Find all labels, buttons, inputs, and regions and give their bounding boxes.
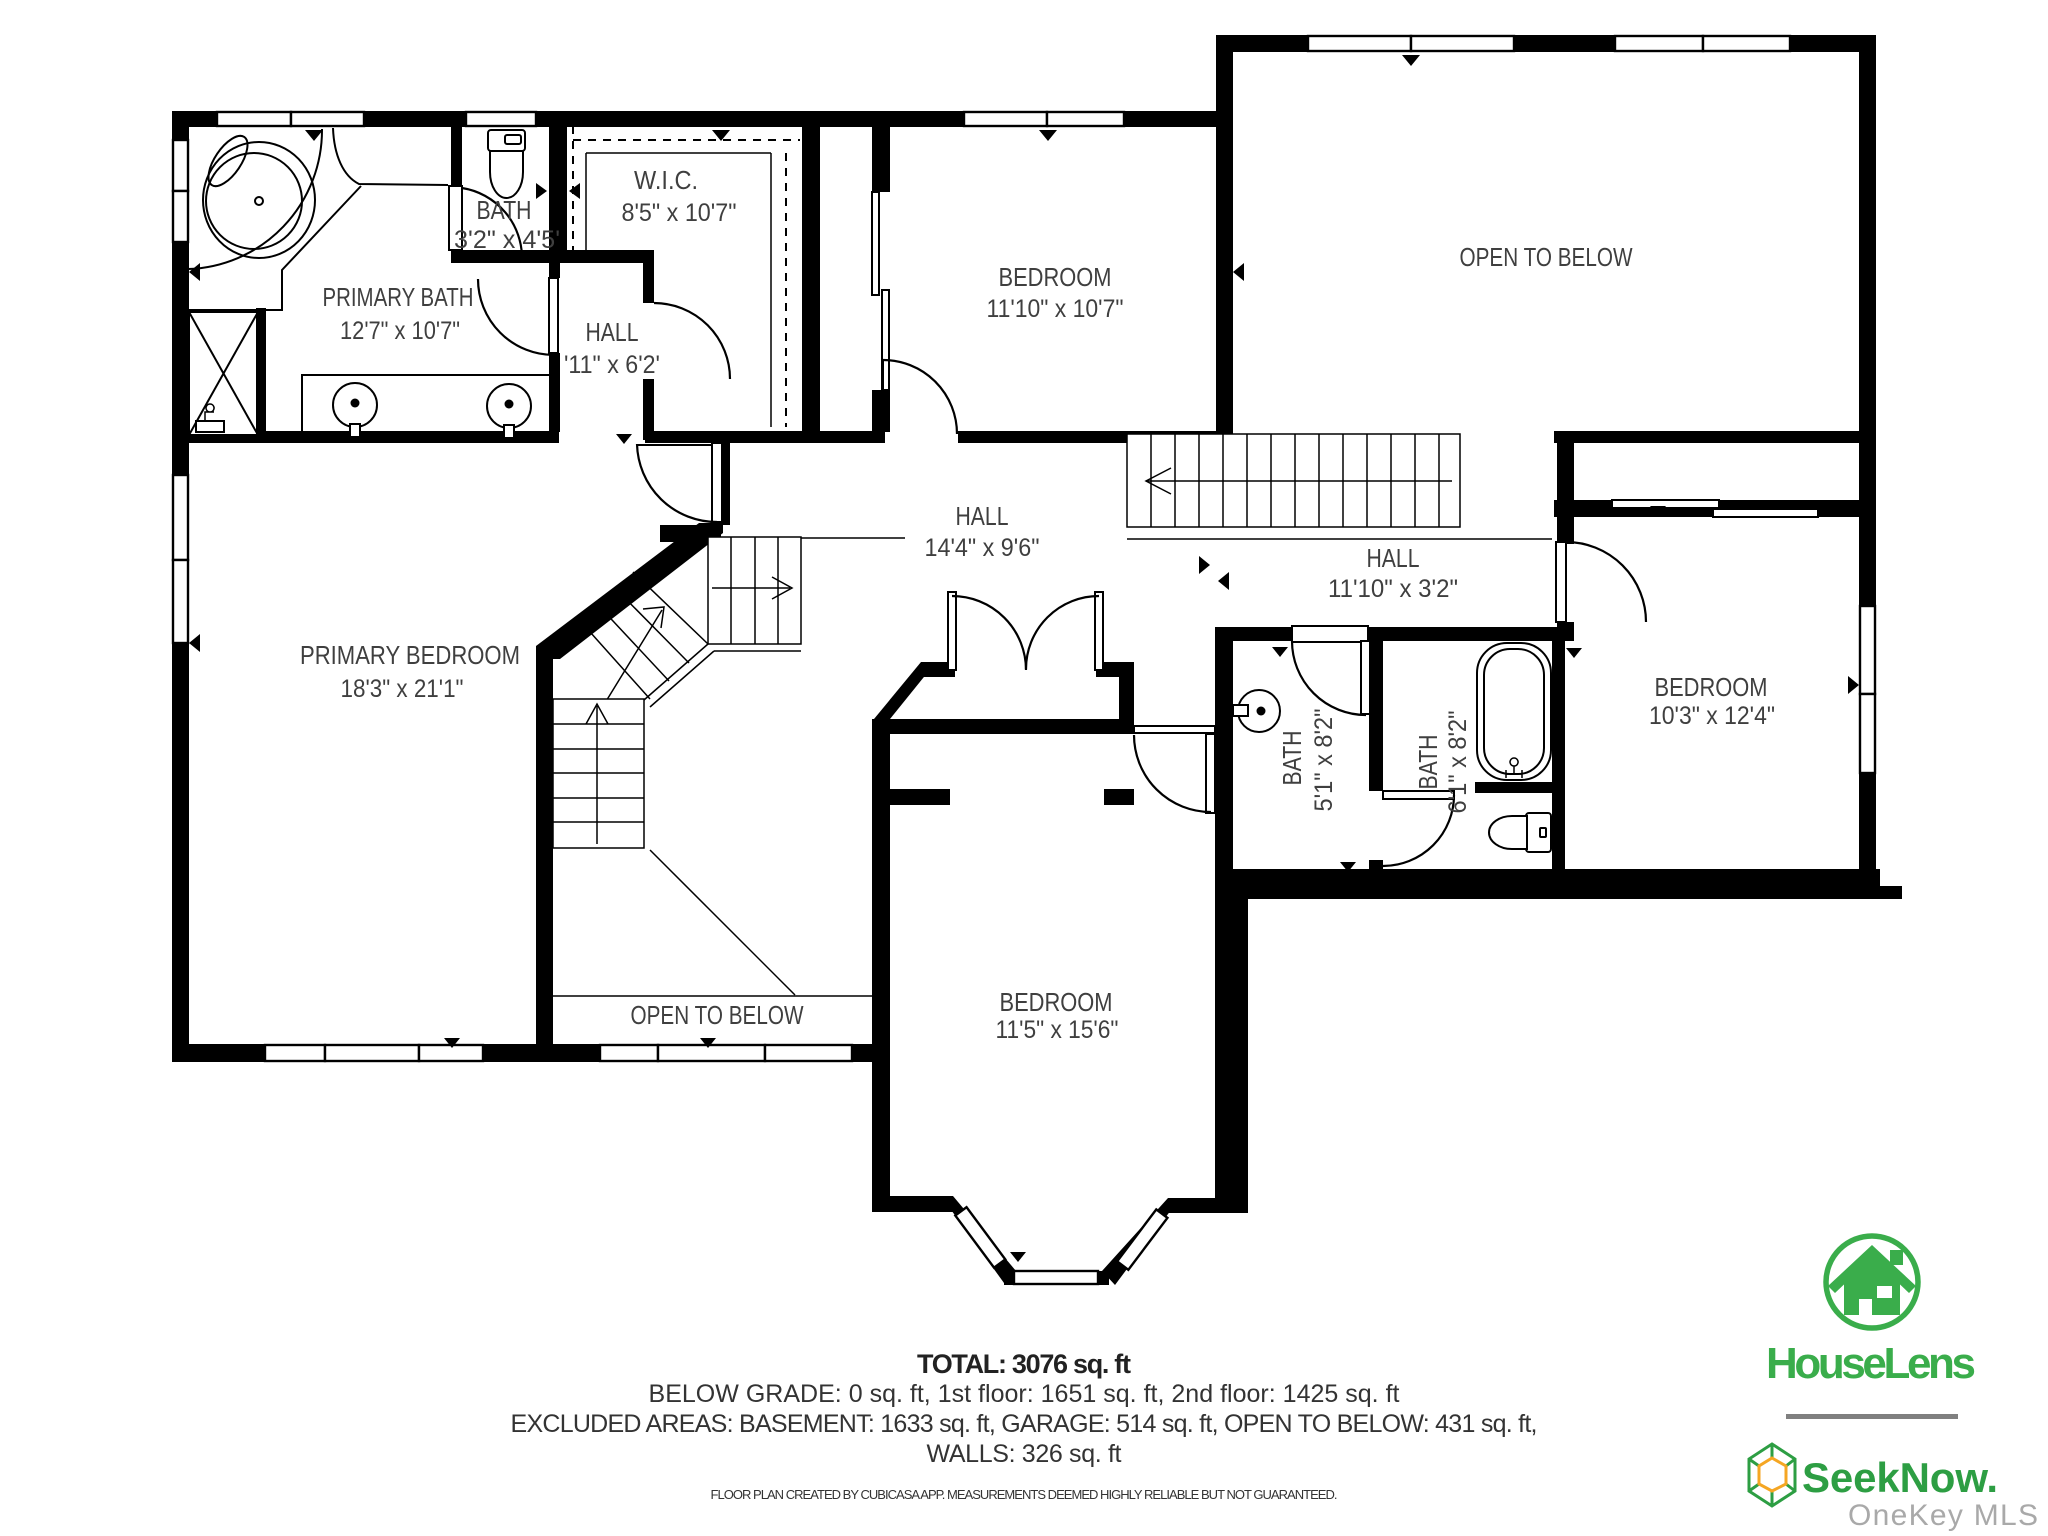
svg-text:W.I.C.: W.I.C. — [634, 165, 698, 195]
svg-text:HALL: HALL — [956, 501, 1009, 531]
svg-text:5'1" x 8'2": 5'1" x 8'2" — [1310, 709, 1338, 812]
svg-text:3'2" x 4'5': 3'2" x 4'5' — [454, 226, 560, 254]
svg-text:8'5" x 10'7": 8'5" x 10'7" — [622, 199, 737, 227]
svg-text:11'10" x 10'7": 11'10" x 10'7" — [987, 295, 1124, 323]
svg-text:HouseLens: HouseLens — [1766, 1339, 1976, 1388]
svg-text:SeekNow.: SeekNow. — [1802, 1454, 1998, 1501]
svg-text:FLOOR PLAN CREATED BY CUBICASA: FLOOR PLAN CREATED BY CUBICASA APP. MEAS… — [711, 1487, 1338, 1502]
svg-text:11'5" x 15'6": 11'5" x 15'6" — [996, 1016, 1119, 1044]
svg-text:18'3" x 21'1": 18'3" x 21'1" — [341, 675, 464, 703]
svg-text:OPEN TO BELOW: OPEN TO BELOW — [1460, 242, 1633, 272]
svg-text:BATH: BATH — [1413, 735, 1443, 790]
svg-text:WALLS: 326 sq. ft: WALLS: 326 sq. ft — [927, 1440, 1122, 1468]
svg-text:OPEN TO BELOW: OPEN TO BELOW — [631, 1000, 804, 1030]
svg-text:14'4" x 9'6": 14'4" x 9'6" — [925, 534, 1040, 562]
svg-text:6'1" x 8'2": 6'1" x 8'2" — [1444, 711, 1472, 814]
svg-text:PRIMARY BEDROOM: PRIMARY BEDROOM — [300, 640, 520, 670]
svg-text:BATH: BATH — [1277, 731, 1307, 786]
svg-text:HALL: HALL — [586, 317, 639, 347]
svg-text:PRIMARY BATH: PRIMARY BATH — [323, 282, 474, 312]
svg-text:BATH: BATH — [477, 195, 532, 225]
svg-text:BEDROOM: BEDROOM — [1000, 987, 1113, 1017]
svg-text:TOTAL: 3076 sq. ft: TOTAL: 3076 sq. ft — [917, 1349, 1131, 1379]
svg-text:11'10" x 3'2": 11'10" x 3'2" — [1328, 575, 1458, 603]
svg-text:EXCLUDED AREAS: BASEMENT: 1633: EXCLUDED AREAS: BASEMENT: 1633 sq. ft, G… — [511, 1410, 1538, 1438]
svg-text:HALL: HALL — [1367, 543, 1420, 573]
svg-text:'11" x 6'2': '11" x 6'2' — [564, 351, 660, 379]
svg-text:OneKey MLS: OneKey MLS — [1848, 1499, 2038, 1532]
svg-text:12'7" x 10'7": 12'7" x 10'7" — [340, 317, 460, 345]
svg-text:10'3" x 12'4": 10'3" x 12'4" — [1649, 702, 1775, 730]
svg-text:BELOW GRADE: 0 sq. ft, 1st flo: BELOW GRADE: 0 sq. ft, 1st floor: 1651 s… — [649, 1380, 1400, 1408]
svg-text:BEDROOM: BEDROOM — [1655, 672, 1768, 702]
svg-text:BEDROOM: BEDROOM — [999, 262, 1112, 292]
